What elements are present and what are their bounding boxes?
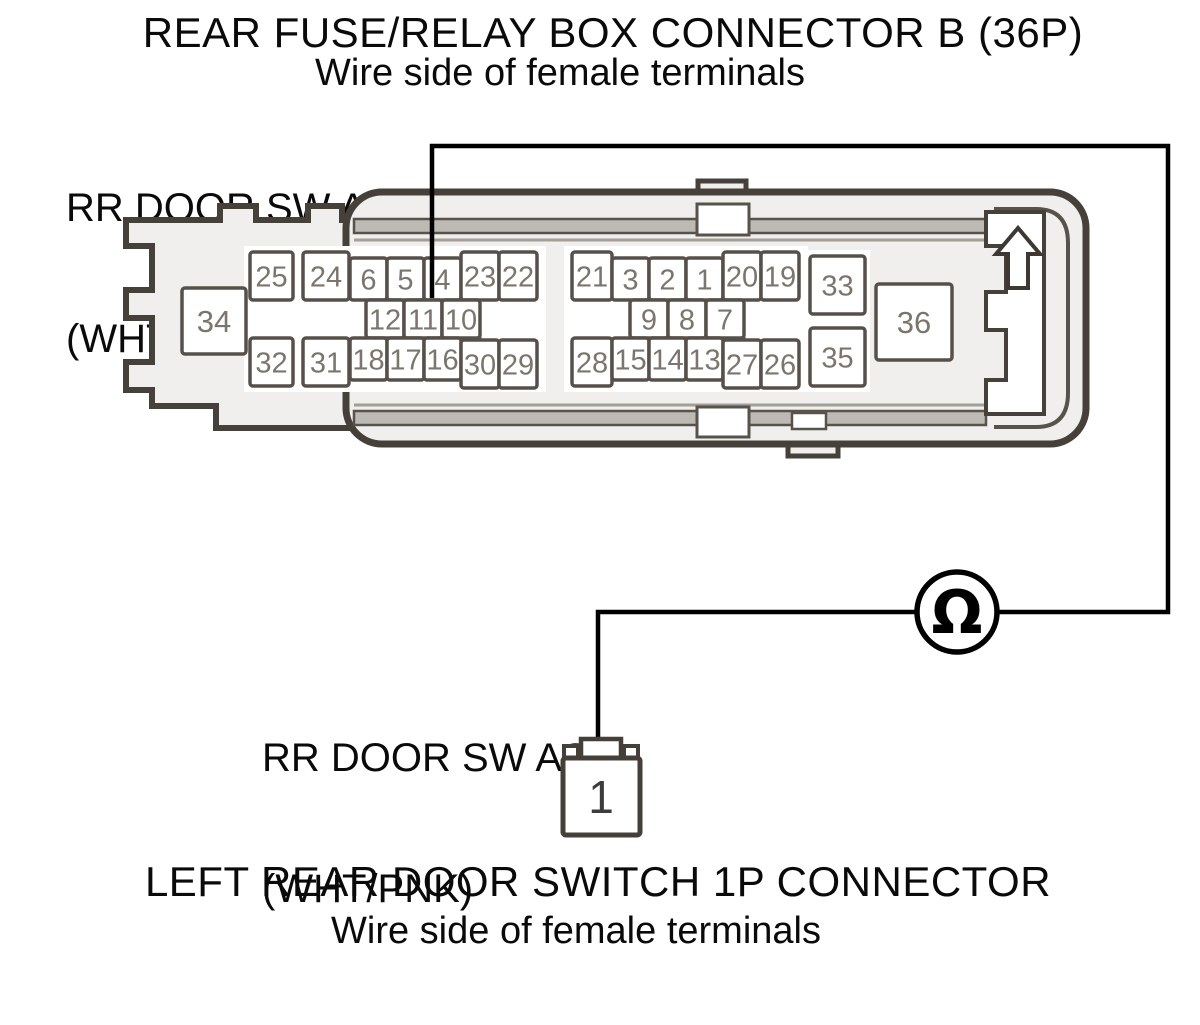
pin-number-27: 27 — [726, 349, 758, 381]
pin-number-35: 35 — [821, 342, 853, 374]
top-band-notch — [697, 204, 749, 235]
pin-number-9: 9 — [641, 304, 657, 336]
pin-number-11: 11 — [408, 304, 438, 336]
bottom-band-window — [792, 413, 826, 429]
bottom-shroud-band — [354, 411, 986, 425]
pin-number-7: 7 — [717, 304, 733, 336]
ohmmeter-symbol: Ω — [931, 578, 982, 648]
pin-number-21: 21 — [576, 261, 608, 293]
connector-1p: 1 — [563, 739, 640, 835]
connector-1p-pin-label: 1 — [588, 771, 614, 823]
pin-number-15: 15 — [614, 344, 646, 376]
pin-number-26: 26 — [764, 349, 796, 381]
pin-number-6: 6 — [360, 264, 376, 296]
pin-number-36: 36 — [897, 305, 931, 340]
pin-number-24: 24 — [310, 261, 342, 293]
pin-number-34: 34 — [197, 304, 231, 339]
pin-number-4: 4 — [434, 264, 450, 296]
pin-number-3: 3 — [622, 264, 638, 296]
wiring-diagram-svg: 2524654232212111032311817163029213212019… — [0, 0, 1200, 1025]
pin-number-8: 8 — [679, 304, 695, 336]
pin-number-12: 12 — [369, 304, 401, 336]
pin-number-25: 25 — [255, 261, 287, 293]
pin-number-29: 29 — [502, 349, 534, 381]
pin-number-23: 23 — [464, 261, 496, 293]
pin-number-28: 28 — [576, 347, 608, 379]
pin-number-5: 5 — [397, 264, 413, 296]
pin-number-32: 32 — [255, 347, 287, 379]
pin-number-14: 14 — [651, 344, 683, 376]
diagram-stage: REAR FUSE/RELAY BOX CONNECTOR B (36P) Wi… — [0, 0, 1200, 1025]
pin-number-20: 20 — [726, 261, 758, 293]
pin-number-31: 31 — [310, 347, 342, 379]
bottom-band-notch — [697, 407, 749, 437]
pin-number-22: 22 — [502, 261, 534, 293]
pin-number-33: 33 — [821, 270, 853, 302]
pin-number-16: 16 — [426, 344, 458, 376]
pin-number-30: 30 — [464, 349, 496, 381]
pin-number-2: 2 — [659, 264, 675, 296]
pin-number-10: 10 — [445, 304, 477, 336]
pin-number-18: 18 — [352, 344, 384, 376]
pin-number-17: 17 — [389, 344, 421, 376]
top-shroud-band — [354, 219, 986, 233]
pin-number-13: 13 — [688, 344, 720, 376]
pin-number-19: 19 — [764, 261, 796, 293]
pin-number-1: 1 — [696, 264, 712, 296]
